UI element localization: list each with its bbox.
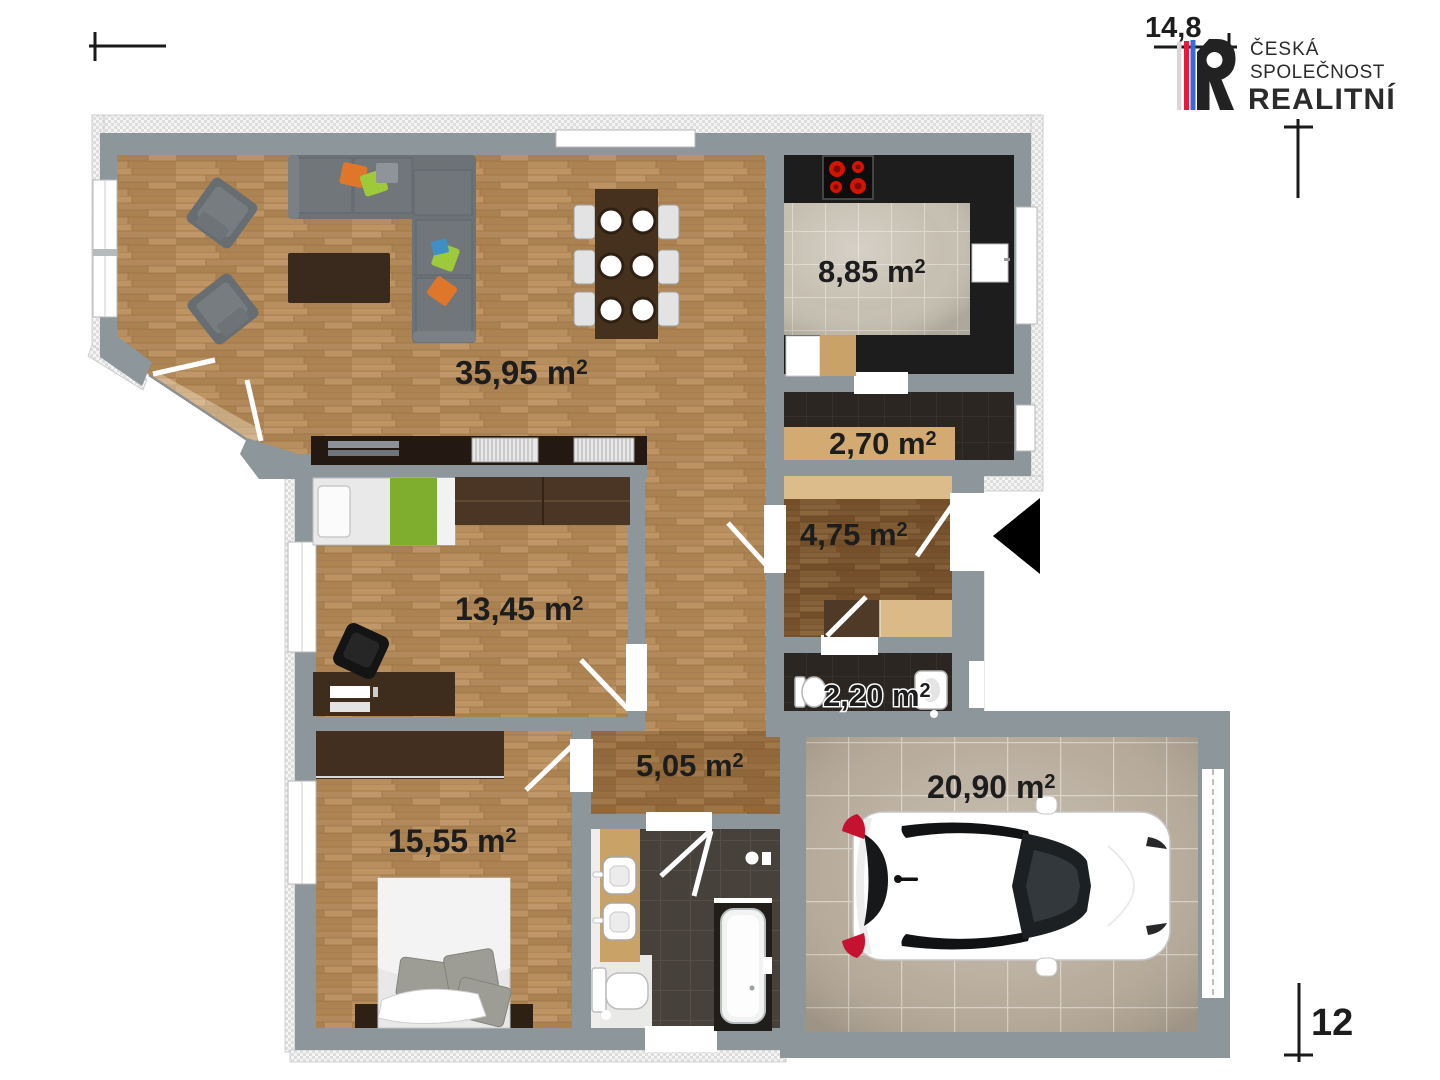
svg-text:14,8: 14,8 [1145,12,1201,44]
svg-text:8,85 m2: 8,85 m2 [818,254,926,289]
svg-text:35,95 m2: 35,95 m2 [455,354,588,391]
svg-text:2,70 m2: 2,70 m2 [829,426,937,461]
svg-text:REALITNÍ: REALITNÍ [1248,82,1396,116]
svg-text:20,90 m2: 20,90 m2 [927,769,1056,805]
svg-text:4,75 m2: 4,75 m2 [800,517,908,552]
svg-text:SPOLEČNOST: SPOLEČNOST [1250,61,1385,83]
svg-text:2,20 m2: 2,20 m2 [823,678,931,713]
svg-text:12: 12 [1311,1002,1353,1044]
svg-text:ČESKÁ: ČESKÁ [1250,38,1319,60]
svg-text:5,05 m2: 5,05 m2 [636,748,744,783]
svg-text:15,55 m2: 15,55 m2 [388,823,517,859]
svg-text:13,45 m2: 13,45 m2 [455,591,584,627]
